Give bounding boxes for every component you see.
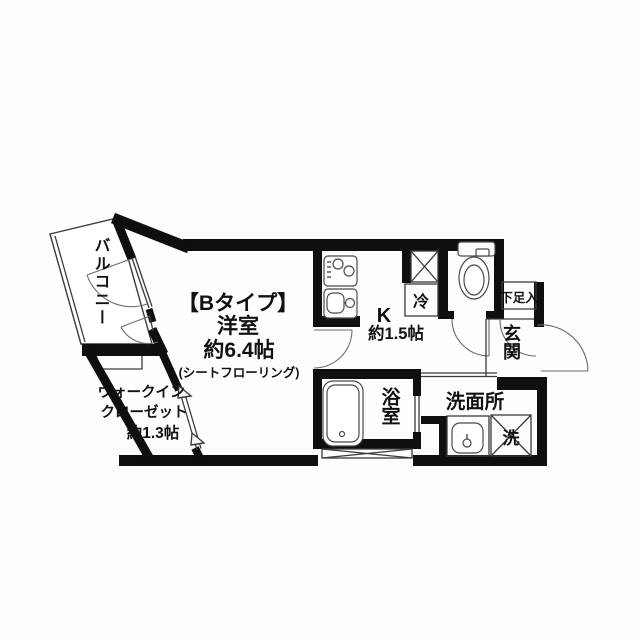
bathroom-label: 浴室 xyxy=(379,387,401,425)
kitchen-size-label: 約1.5帖 xyxy=(368,323,424,343)
main-room-type-label: 【Bタイプ】 xyxy=(178,292,298,315)
pipe-space-box xyxy=(411,251,438,282)
kitchen-sink-icon xyxy=(324,289,357,318)
washroom-label: 洗面所 xyxy=(446,390,505,413)
main-room-note-label: (シートフローリング) xyxy=(179,365,300,380)
washbasin-icon xyxy=(447,416,489,456)
bathtub-icon xyxy=(323,381,363,446)
main-room-size-label: 約6.4帖 xyxy=(203,338,274,362)
toilet-door xyxy=(452,319,489,356)
bathroom-door xyxy=(415,396,419,432)
closet-label-line2: クローゼット xyxy=(101,403,188,421)
toilet-icon xyxy=(458,242,495,299)
closet-label-line3: 約1.3帖 xyxy=(127,423,180,442)
stove-icon xyxy=(324,256,357,286)
kitchen-label: K xyxy=(377,305,392,327)
floor-plan-page: バルコニー 【Bタイプ】 洋室 約6.4帖 (シートフローリング) ウォークイン… xyxy=(0,0,640,640)
shoe-cabinet-label: 下足入 xyxy=(500,291,538,305)
kitchen-door xyxy=(314,330,352,368)
floor-plan-canvas: バルコニー 【Bタイプ】 洋室 約6.4帖 (シートフローリング) ウォークイン… xyxy=(0,0,640,640)
closet-label-line1: ウォークイン xyxy=(98,384,185,401)
entrance-label: 玄関 xyxy=(501,323,521,360)
main-room-name-label: 洋室 xyxy=(217,314,259,338)
fridge-label: 冷 xyxy=(413,292,429,311)
laundry-label: 洗 xyxy=(503,428,520,448)
balcony-label: バルコニー xyxy=(92,237,111,327)
under-bath-box xyxy=(322,449,412,458)
